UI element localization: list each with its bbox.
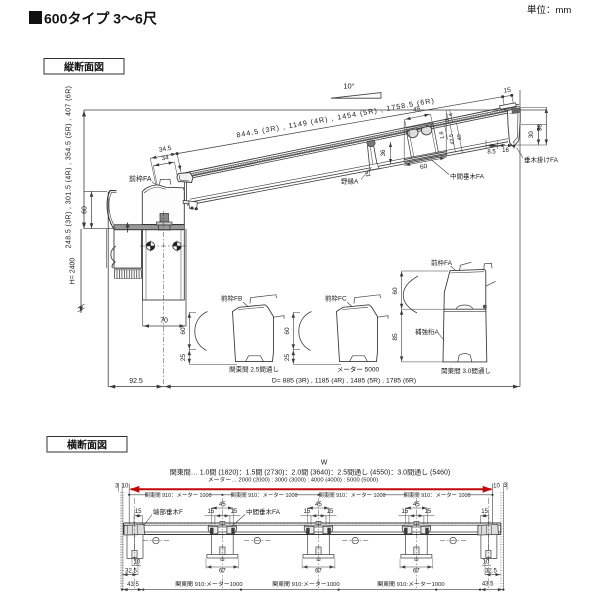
- svg-text:補強桁A: 補強桁A: [415, 327, 440, 336]
- svg-text:45: 45: [413, 502, 420, 508]
- svg-text:横断面図: 横断面図: [67, 439, 107, 452]
- svg-text:70: 70: [160, 318, 168, 325]
- svg-text:45: 45: [315, 502, 322, 508]
- svg-text:関東間 910:メーター1000: 関東間 910:メーター1000: [272, 580, 340, 588]
- svg-text:15: 15: [231, 509, 238, 515]
- svg-text:縦断面図: 縦断面図: [64, 61, 104, 74]
- svg-text:W: W: [321, 460, 328, 467]
- svg-text:85: 85: [392, 333, 399, 341]
- svg-text:単位：mm: 単位：mm: [527, 4, 571, 16]
- svg-text:1.8: 1.8: [439, 131, 446, 140]
- svg-text:関東間 2.5間通し: 関東間 2.5間通し: [229, 365, 279, 374]
- svg-text:25: 25: [180, 354, 187, 362]
- svg-text:8.5: 8.5: [487, 150, 496, 156]
- svg-text:メーター 5000: メーター 5000: [337, 365, 380, 374]
- svg-text:前枠FB: 前枠FB: [221, 294, 242, 303]
- svg-text:15: 15: [135, 509, 142, 515]
- svg-text:関東間 910：メーター 1000: 関東間 910：メーター 1000: [230, 491, 297, 499]
- svg-text:前枠FA: 前枠FA: [129, 174, 152, 183]
- svg-text:60: 60: [284, 327, 291, 335]
- svg-text:16: 16: [502, 148, 509, 154]
- svg-text:関東間 910：メーター 1000: 関東間 910：メーター 1000: [318, 491, 385, 499]
- svg-text:45: 45: [219, 502, 226, 508]
- svg-text:15: 15: [503, 87, 512, 95]
- svg-text:関東間 910：メーター 1000: 関東間 910：メーター 1000: [144, 491, 211, 499]
- svg-text:60: 60: [82, 206, 89, 214]
- svg-text:36: 36: [381, 149, 387, 156]
- svg-text:10: 10: [122, 484, 129, 490]
- svg-text:25: 25: [284, 354, 291, 362]
- svg-text:中間垂木FA: 中間垂木FA: [246, 507, 281, 516]
- svg-text:関東間 910:メーター1000: 関東間 910:メーター1000: [175, 580, 243, 588]
- svg-text:関東間 910：メーター 1000: 関東間 910：メーター 1000: [403, 491, 470, 499]
- svg-text:垂木掛けFA: 垂木掛けFA: [524, 155, 559, 164]
- svg-text:92.5: 92.5: [129, 378, 143, 385]
- svg-text:関東間… 1.0間 (1820)：1.5間 (2730)：2: 関東間… 1.0間 (1820)：1.5間 (2730)：2.0間 (3640)…: [170, 468, 451, 477]
- svg-text:10: 10: [483, 560, 490, 566]
- svg-text:10: 10: [493, 484, 500, 490]
- svg-text:野縁A: 野縁A: [341, 177, 359, 186]
- svg-text:43.5: 43.5: [482, 582, 494, 588]
- svg-text:中間垂木FA: 中間垂木FA: [450, 172, 485, 181]
- svg-text:前枠FA: 前枠FA: [431, 258, 453, 267]
- svg-text:67: 67: [413, 569, 420, 575]
- svg-text:10°: 10°: [343, 82, 354, 91]
- svg-text:248.5 (3R) , 301.5 (4R) , 354.: 248.5 (3R) , 301.5 (4R) , 354.5 (5R) , 4…: [66, 86, 73, 249]
- svg-text:メーター… 2000 (2000) : 3000 (3000: メーター… 2000 (2000) : 3000 (3000) : 4000 (…: [208, 476, 378, 484]
- svg-text:60: 60: [180, 327, 187, 335]
- svg-text:関東間 3.0間通し: 関東間 3.0間通し: [441, 366, 491, 375]
- svg-text:67: 67: [219, 569, 226, 575]
- svg-text:43.5: 43.5: [127, 582, 139, 588]
- svg-text:H= 2400: H= 2400: [70, 258, 77, 285]
- svg-text:D= 885 (3R) , 1185 (4R) , 1485: D= 885 (3R) , 1185 (4R) , 1485 (5R) , 17…: [272, 377, 416, 384]
- svg-text:関東間 910:メーター1000: 関東間 910:メーター1000: [377, 580, 445, 588]
- svg-text:15: 15: [481, 509, 488, 515]
- svg-text:15: 15: [327, 509, 334, 515]
- svg-text:30: 30: [528, 131, 535, 139]
- svg-text:前枠FC: 前枠FC: [325, 294, 347, 303]
- svg-text:67: 67: [315, 569, 322, 575]
- svg-text:10: 10: [134, 560, 141, 566]
- svg-text:15: 15: [425, 509, 432, 515]
- svg-text:端部垂木F: 端部垂木F: [153, 507, 183, 516]
- svg-text:600タイプ 3～6尺: 600タイプ 3～6尺: [44, 11, 157, 27]
- svg-text:60: 60: [392, 287, 399, 295]
